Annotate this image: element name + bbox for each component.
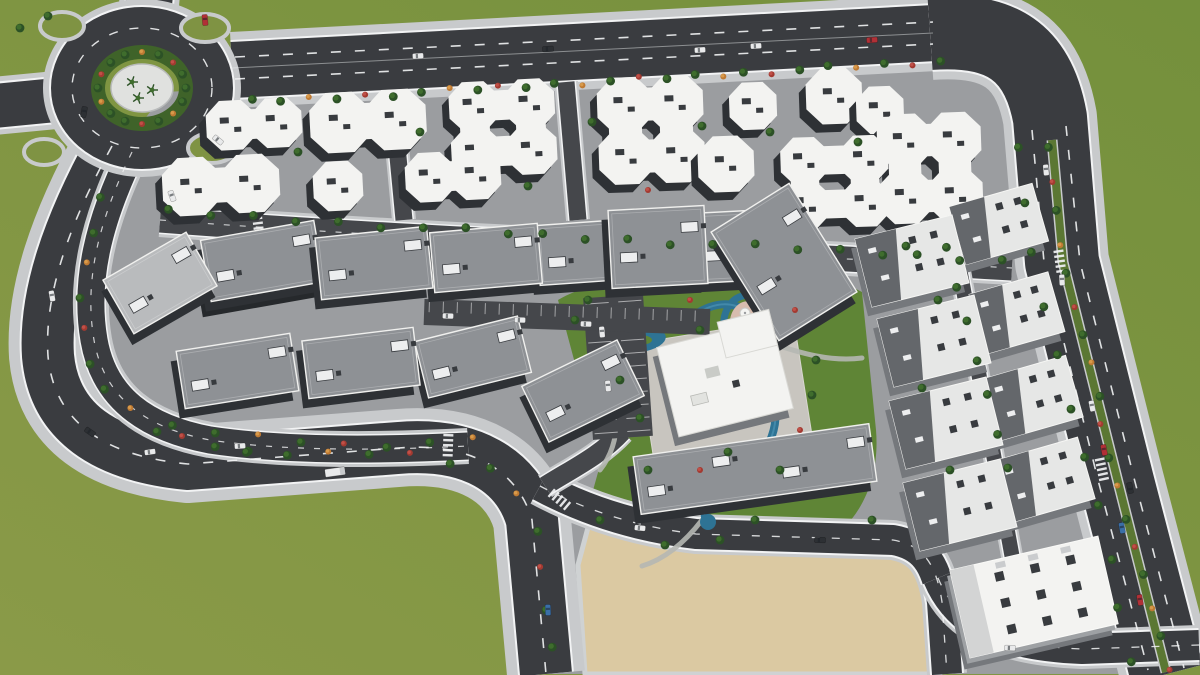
- tree: [524, 182, 533, 191]
- bush: [495, 83, 501, 89]
- bush: [687, 297, 693, 303]
- tree: [973, 356, 982, 365]
- tree: [571, 316, 580, 325]
- tree: [696, 326, 705, 335]
- bush: [792, 307, 798, 313]
- tree: [952, 283, 961, 292]
- tree: [581, 235, 590, 244]
- tree: [106, 109, 115, 118]
- car: [750, 43, 761, 49]
- tree: [89, 229, 98, 238]
- tree: [242, 448, 251, 457]
- tree: [1027, 248, 1036, 257]
- tree: [248, 95, 257, 104]
- car: [412, 53, 423, 59]
- tree: [550, 79, 559, 88]
- car: [514, 317, 525, 323]
- bush: [170, 60, 176, 66]
- tree: [983, 390, 992, 399]
- tree: [666, 240, 675, 249]
- bush: [720, 74, 726, 80]
- car: [814, 537, 825, 543]
- tree: [96, 193, 105, 202]
- bush: [362, 92, 368, 98]
- tree: [461, 223, 470, 232]
- bush: [179, 433, 185, 439]
- bush: [447, 85, 453, 91]
- tree: [100, 385, 109, 394]
- bush: [1149, 605, 1155, 611]
- tree: [584, 296, 593, 305]
- tree: [1044, 143, 1053, 152]
- tree: [446, 459, 455, 468]
- tree: [588, 118, 597, 127]
- tree: [206, 211, 215, 220]
- tree: [178, 70, 187, 79]
- bush: [325, 449, 331, 455]
- tree: [1127, 657, 1136, 666]
- tree: [533, 527, 542, 536]
- tree: [1020, 199, 1029, 208]
- bush: [645, 187, 651, 193]
- tree: [1039, 302, 1048, 311]
- bush: [407, 450, 413, 456]
- car: [1004, 645, 1015, 651]
- bush: [170, 110, 176, 116]
- car: [234, 443, 245, 449]
- tree: [249, 211, 258, 220]
- tree: [766, 128, 775, 137]
- bush: [84, 259, 90, 265]
- bush: [537, 564, 543, 570]
- tree: [1096, 392, 1105, 401]
- tree: [473, 86, 482, 95]
- bush: [470, 434, 476, 440]
- car: [202, 14, 208, 25]
- bush: [1088, 359, 1094, 365]
- tree: [880, 59, 889, 68]
- car: [866, 37, 877, 43]
- tree: [776, 466, 785, 475]
- car: [1059, 274, 1065, 285]
- tree: [182, 84, 191, 93]
- tree: [425, 438, 434, 447]
- car: [442, 313, 453, 319]
- tree: [934, 296, 943, 305]
- bush: [579, 82, 585, 88]
- bush: [1057, 242, 1063, 248]
- tree: [824, 61, 833, 70]
- tree: [902, 242, 911, 251]
- tree: [1053, 350, 1062, 359]
- bush: [98, 99, 104, 105]
- tree: [1003, 464, 1012, 473]
- tree: [962, 316, 971, 325]
- tree: [812, 356, 821, 365]
- tree: [1156, 632, 1165, 641]
- bush: [853, 65, 859, 71]
- tree: [836, 245, 845, 254]
- tree: [94, 84, 103, 93]
- tree: [76, 294, 85, 303]
- tree: [808, 391, 817, 400]
- tree: [382, 443, 391, 452]
- tree: [1080, 453, 1089, 462]
- bush: [341, 441, 347, 447]
- roundabout-corner-green: [24, 139, 64, 165]
- tree: [993, 430, 1002, 439]
- tree: [724, 448, 733, 457]
- tree: [698, 122, 707, 131]
- car: [694, 47, 705, 53]
- tree: [751, 516, 760, 525]
- tree: [878, 251, 887, 260]
- tree: [751, 239, 760, 248]
- tree: [283, 451, 292, 460]
- car: [542, 46, 553, 52]
- tree: [1079, 330, 1088, 339]
- tree: [164, 205, 173, 214]
- tree: [1052, 206, 1061, 215]
- bush: [513, 490, 519, 496]
- tree: [1108, 555, 1117, 564]
- tree: [793, 245, 802, 254]
- tree: [606, 77, 615, 86]
- site-plan-svg: [0, 0, 1200, 675]
- apartment-slab-block: [308, 226, 435, 309]
- bush: [127, 405, 133, 411]
- tree: [486, 464, 495, 473]
- tree: [1113, 603, 1122, 612]
- tree: [708, 240, 717, 249]
- tree: [121, 117, 130, 126]
- tree: [334, 217, 343, 226]
- tree: [661, 541, 670, 550]
- tree: [548, 643, 557, 652]
- road-cluster-alley-2: [566, 82, 578, 220]
- bush: [1097, 421, 1103, 427]
- bush: [139, 49, 145, 55]
- tree: [795, 66, 804, 75]
- tree: [389, 92, 398, 101]
- tree: [294, 148, 303, 157]
- bush: [81, 325, 87, 331]
- tree: [596, 516, 605, 525]
- bush: [769, 71, 775, 77]
- tree: [1014, 143, 1023, 152]
- tree: [868, 516, 877, 525]
- tree: [44, 12, 53, 21]
- car: [605, 380, 611, 391]
- tree: [936, 57, 945, 66]
- car: [580, 321, 591, 327]
- tree: [153, 427, 162, 436]
- bush: [306, 94, 312, 100]
- tree: [121, 50, 130, 59]
- car: [1043, 164, 1049, 175]
- tree: [538, 229, 547, 238]
- car: [545, 604, 551, 615]
- bush: [1049, 179, 1055, 185]
- tree: [365, 450, 374, 459]
- bush: [797, 427, 803, 433]
- end-pond: [700, 514, 716, 530]
- tree: [663, 74, 672, 83]
- bush: [697, 467, 703, 473]
- bush: [1167, 667, 1173, 673]
- tree: [178, 97, 187, 106]
- apartment-slab-block: [423, 223, 545, 302]
- tree: [106, 58, 115, 67]
- bush: [1114, 482, 1120, 488]
- bush: [910, 62, 916, 68]
- tree: [154, 117, 163, 126]
- tree: [998, 256, 1007, 265]
- tree: [86, 360, 95, 369]
- tree: [644, 466, 653, 475]
- tree: [211, 442, 220, 451]
- tree: [168, 421, 177, 430]
- tree: [417, 88, 426, 97]
- bush: [98, 71, 104, 77]
- bush: [636, 74, 642, 80]
- tree: [739, 68, 748, 77]
- tree: [416, 128, 425, 137]
- tree: [913, 250, 922, 259]
- car: [144, 449, 156, 456]
- bush: [139, 121, 145, 127]
- tree: [623, 235, 632, 244]
- tree: [1139, 570, 1148, 579]
- tree: [691, 70, 700, 79]
- tree: [297, 438, 306, 447]
- bush: [255, 431, 261, 437]
- roundabout-island-plaza: [111, 64, 173, 112]
- tree: [942, 243, 951, 252]
- tree: [854, 138, 863, 147]
- tree: [291, 217, 300, 226]
- tree: [716, 536, 725, 545]
- tree: [1067, 405, 1076, 414]
- tree: [616, 376, 625, 385]
- tree: [419, 223, 428, 232]
- tree: [333, 95, 342, 104]
- tree: [276, 97, 285, 106]
- tree: [504, 230, 513, 239]
- tree: [16, 24, 25, 33]
- tree: [636, 414, 645, 423]
- bush: [1132, 544, 1138, 550]
- tree: [918, 384, 927, 393]
- tree: [946, 466, 955, 475]
- aerial-render-scene: [0, 0, 1200, 675]
- tree: [1094, 501, 1103, 510]
- tree: [376, 223, 385, 232]
- tree: [955, 256, 964, 265]
- apartment-slab-block: [601, 205, 709, 297]
- tree: [522, 83, 531, 92]
- tree: [211, 429, 220, 438]
- car: [634, 525, 645, 531]
- bush: [1072, 304, 1078, 310]
- tree: [154, 50, 163, 59]
- car: [599, 326, 605, 337]
